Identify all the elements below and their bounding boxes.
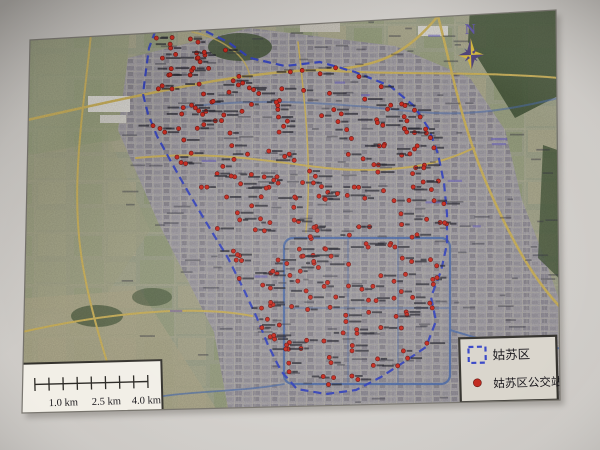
corner-shade <box>0 0 600 450</box>
photo-canvas: N 1.0 km 2.5 km 4.0 km <box>0 0 600 450</box>
map-photo: N 1.0 km 2.5 km 4.0 km <box>0 0 600 450</box>
